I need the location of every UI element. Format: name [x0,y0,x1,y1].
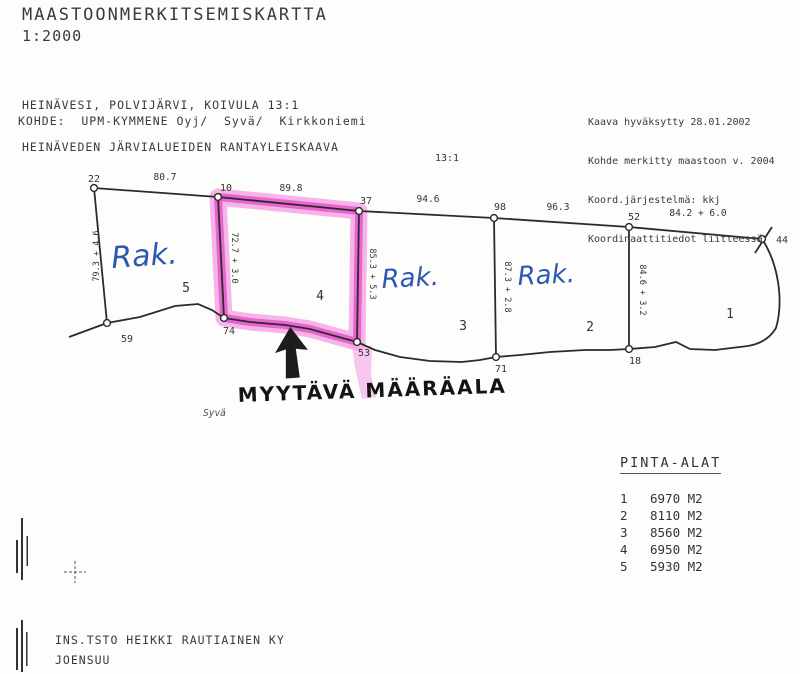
point-marker-18 [626,346,633,353]
location-line-1: HEINÄVESI, POLVIJÄRVI, KOIVULA 13:1 [22,98,339,112]
table-row: 1 6970 M2 [620,490,721,507]
point-label-74: 74 [223,326,235,337]
approval-info-block: Kaava hyväksytty 28.01.2002 Kohde merkit… [588,90,775,272]
lake-name-label: Syvä [203,408,226,419]
point-label-53: 53 [358,348,370,359]
table-row: 4 6950 M2 [620,541,721,558]
areas-table: PINTA-ALAT 1 6970 M2 2 8110 M2 3 8560 M2… [620,452,721,575]
point-marker-22 [91,185,98,192]
point-marker-37 [356,208,363,215]
point-marker-98 [491,215,498,222]
table-row: 3 8560 M2 [620,524,721,541]
point-label-59: 59 [121,334,133,345]
document-title: MAASTOONMERKITSEMISKARTTA [22,5,328,25]
scanned-map-document: 22 10 37 98 52 44 59 74 53 71 18 80.7 89… [0,0,800,674]
table-row: 5 5930 M2 [620,558,721,575]
approval-line-3: Koord.järjestelmä: kkj [588,194,775,207]
scan-artifact-bars [16,518,28,672]
point-marker-74 [221,315,228,322]
shoreline-parcel3 [357,342,496,362]
shoreline-parcel2 [496,349,629,357]
point-label-18: 18 [629,356,641,367]
area-cell: 6970 M2 [650,490,703,507]
point-label-10: 10 [220,183,232,194]
location-line-2: HEINÄVEDEN JÄRVIALUEIDEN RANTAYLEISKAAVA [22,140,339,154]
edge-label-98-71: 87.3 + 2.8 [502,261,512,312]
edge-label-22-59: 79.3 + 4.6 [92,230,102,281]
parcel-number-1: 1 [726,307,734,322]
cross-mark-icon [64,561,86,583]
parcel-cell: 1 [620,490,650,507]
areas-table-rows: 1 6970 M2 2 8110 M2 3 8560 M2 4 6950 M2 … [620,490,721,575]
lot-line-98-71 [494,218,496,357]
approval-line-4: Koordinaattitiedot liitteessä [588,233,775,246]
approval-line-1: Kaava hyväksytty 28.01.2002 [588,116,775,129]
point-marker-10 [215,194,222,201]
point-marker-71 [493,354,500,361]
parcel-number-2: 2 [586,320,594,335]
approval-line-2: Kohde merkitty maastoon v. 2004 [588,155,775,168]
edge-label-10-74: 72.7 + 3.0 [229,232,239,283]
edge-label-52-18: 84.6 + 3.2 [637,264,647,315]
point-marker-59 [104,320,111,327]
rak-annotation-parcel3: Rak. [381,262,440,295]
parcel-number-3: 3 [459,319,467,334]
property-id-label: 13:1 [435,153,459,164]
areas-table-title: PINTA-ALAT [620,455,721,474]
area-cell: 5930 M2 [650,558,703,575]
west-boundary-extension [69,323,107,337]
point-label-37: 37 [360,196,372,207]
point-marker-53 [354,339,361,346]
shoreline-parcel5 [107,304,224,323]
parcel-cell: 4 [620,541,650,558]
area-cell: 8560 M2 [650,524,703,541]
shoreline-parcel1 [629,342,748,350]
point-label-98: 98 [494,202,506,213]
parcel-cell: 2 [620,507,650,524]
parcel-cell: 3 [620,524,650,541]
edge-label-37-53: 85.3 + 5.3 [367,248,377,299]
myytava-maaraala-caption: MYYTÄVÄ MÄÄRÄALA [237,374,507,407]
surveyor-company: INS.TSTO HEIKKI RAUTIAINEN KY [55,633,285,647]
parcel-number-4: 4 [316,289,324,304]
kohde-line: KOHDE: UPM-KYMMENE Oyj/ Syvä/ Kirkkoniem… [18,114,367,128]
rak-annotation-parcel2: Rak. [517,259,576,292]
point-label-44: 44 [776,235,788,246]
edge-label-98-52: 96.3 [547,202,570,213]
edge-label-10-37: 89.8 [280,183,303,194]
edge-label-37-98: 94.6 [417,194,440,205]
parcel-cell: 5 [620,558,650,575]
area-cell: 8110 M2 [650,507,703,524]
table-row: 2 8110 M2 [620,507,721,524]
area-cell: 6950 M2 [650,541,703,558]
surveyor-city: JOENSUU [55,653,110,667]
parcel-number-5: 5 [182,281,190,296]
map-scale: 1:2000 [22,27,82,45]
rak-annotation-parcel5: Rak. [110,236,178,276]
